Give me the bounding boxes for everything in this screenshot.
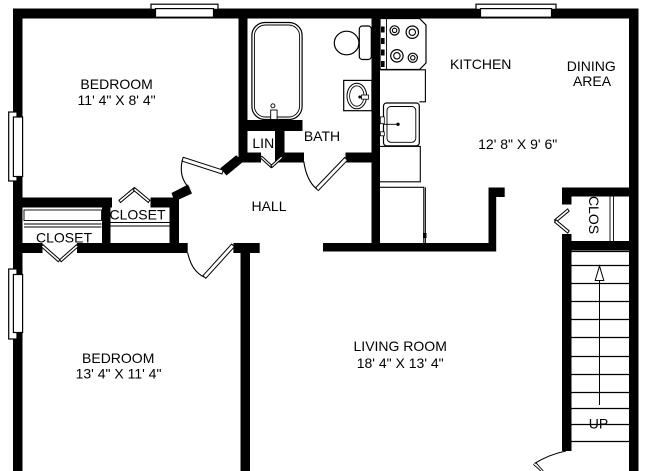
svg-text:CLOS: CLOS	[586, 196, 602, 234]
svg-text:BATH: BATH	[304, 128, 340, 144]
svg-text:DINING: DINING	[567, 58, 616, 74]
svg-text:CLOSET: CLOSET	[109, 207, 165, 223]
svg-text:LIN: LIN	[252, 135, 274, 151]
svg-text:KITCHEN: KITCHEN	[450, 56, 511, 72]
svg-text:HALL: HALL	[251, 198, 286, 214]
svg-text:AREA: AREA	[573, 73, 612, 89]
svg-text:LIVING ROOM: LIVING ROOM	[354, 338, 447, 354]
svg-text:11' 4" X 8' 4": 11' 4" X 8' 4"	[78, 92, 156, 108]
svg-text:BEDROOM: BEDROOM	[82, 350, 154, 366]
svg-text:12' 8" X 9' 6": 12' 8" X 9' 6"	[478, 136, 557, 152]
svg-text:13' 4" X 11' 4": 13' 4" X 11' 4"	[76, 366, 162, 382]
svg-text:CLOSET: CLOSET	[36, 230, 92, 246]
svg-text:BEDROOM: BEDROOM	[80, 76, 152, 92]
svg-text:UP: UP	[589, 416, 608, 432]
svg-text:18' 4" X 13' 4": 18' 4" X 13' 4"	[357, 355, 444, 371]
